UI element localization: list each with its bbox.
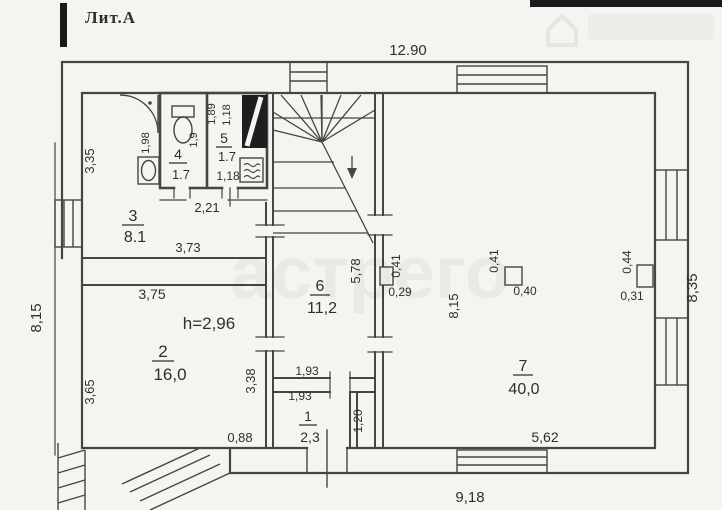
scanned-floorplan-page: астрего Лит.А 12.90 9,18 8,15 8,35 3 8.1… xyxy=(0,0,722,510)
door-arc xyxy=(120,95,158,133)
window-top-left xyxy=(290,62,327,93)
room6-dim-left: 5,78 xyxy=(348,258,363,283)
room3-dim-door: 1,98 xyxy=(140,132,152,153)
pillar2-dim-d: 0,40 xyxy=(513,284,537,298)
porch-steps xyxy=(58,443,230,510)
dim-left: 8,15 xyxy=(28,303,45,332)
room2-dim-bottom: 0,88 xyxy=(227,430,252,445)
room5-dim-w2: 1,18 xyxy=(221,104,233,125)
chimney-flue xyxy=(242,95,267,148)
scan-bar-left xyxy=(60,3,67,47)
stair-arrow-head xyxy=(347,168,357,179)
room7-area: 40,0 xyxy=(508,381,539,398)
scan-bar-top xyxy=(530,0,722,7)
staircase xyxy=(273,95,375,243)
window-right-lower xyxy=(655,318,688,385)
window-bottom xyxy=(457,450,547,473)
room1-dim-w1: 1,93 xyxy=(295,364,319,378)
room5-dim-w1: 1,89 xyxy=(206,103,218,124)
dim-top: 12.90 xyxy=(389,42,427,59)
room4-number: 4 xyxy=(174,146,182,162)
room7-number: 7 xyxy=(519,358,528,375)
room3-dim-top: 2,21 xyxy=(194,200,219,215)
room3-number: 3 xyxy=(129,208,138,225)
litera-label: Лит.А xyxy=(85,8,136,27)
room2-dim-right: 3,38 xyxy=(243,368,258,393)
room1-dim-w2: 1,93 xyxy=(288,389,312,403)
room1-area: 2,3 xyxy=(300,429,320,445)
room3-dim-bottom: 3,73 xyxy=(175,240,200,255)
room6-number: 6 xyxy=(316,278,325,295)
window-top-right xyxy=(457,66,547,93)
room2-dim-left: 3,65 xyxy=(82,379,97,404)
watermark-text: астрего xyxy=(230,231,510,314)
room2-dim-top: 3,75 xyxy=(138,286,165,302)
porch-diagonal-hatch xyxy=(122,448,230,510)
room1-dim-h: 1,20 xyxy=(351,409,365,433)
room5-dim-b: 1,18 xyxy=(216,169,240,183)
room5-number: 5 xyxy=(220,130,228,146)
dim-bottom: 9,18 xyxy=(455,489,484,506)
room3-area: 8.1 xyxy=(124,229,146,246)
room2-area: 16,0 xyxy=(153,365,186,384)
window-right-upper xyxy=(655,170,688,240)
watermark-smudge xyxy=(588,14,714,40)
floorplan-drawing: астрего Лит.А 12.90 9,18 8,15 8,35 3 8.1… xyxy=(0,0,722,510)
sink-icon xyxy=(138,157,159,184)
pillar2-dim-w: 0,41 xyxy=(487,249,501,273)
pillar3-dim-w: 0,44 xyxy=(620,250,634,274)
room3-dim-left: 3,35 xyxy=(82,148,97,173)
room5-area: 1.7 xyxy=(218,149,236,164)
dim-right: 8,35 xyxy=(684,273,701,302)
room6-area: 11,2 xyxy=(307,300,337,317)
window-left xyxy=(55,200,82,247)
room1-door-ticks xyxy=(330,372,350,398)
room7-dim-left: 8,15 xyxy=(446,293,461,318)
pillar1-dim-d: 0,29 xyxy=(388,285,412,299)
room1-number: 1 xyxy=(304,408,312,424)
room2-ceiling-height: h=2,96 xyxy=(183,314,235,333)
room2-number: 2 xyxy=(158,342,167,361)
room4-area: 1.7 xyxy=(172,167,190,182)
pillar3-dim-d: 0,31 xyxy=(620,289,644,303)
room4-dim-w: 1,9 xyxy=(188,132,200,147)
stair-treads xyxy=(273,95,375,233)
left-edge-steps xyxy=(58,443,85,510)
room7-dim-bottom: 5,62 xyxy=(531,429,558,445)
pillar1-dim-w: 0,41 xyxy=(389,254,403,278)
stove-icon xyxy=(240,158,263,182)
watermark-house-logo xyxy=(548,16,576,45)
pillar-3 xyxy=(637,265,653,287)
stair-stringer-diagonal xyxy=(322,142,373,243)
